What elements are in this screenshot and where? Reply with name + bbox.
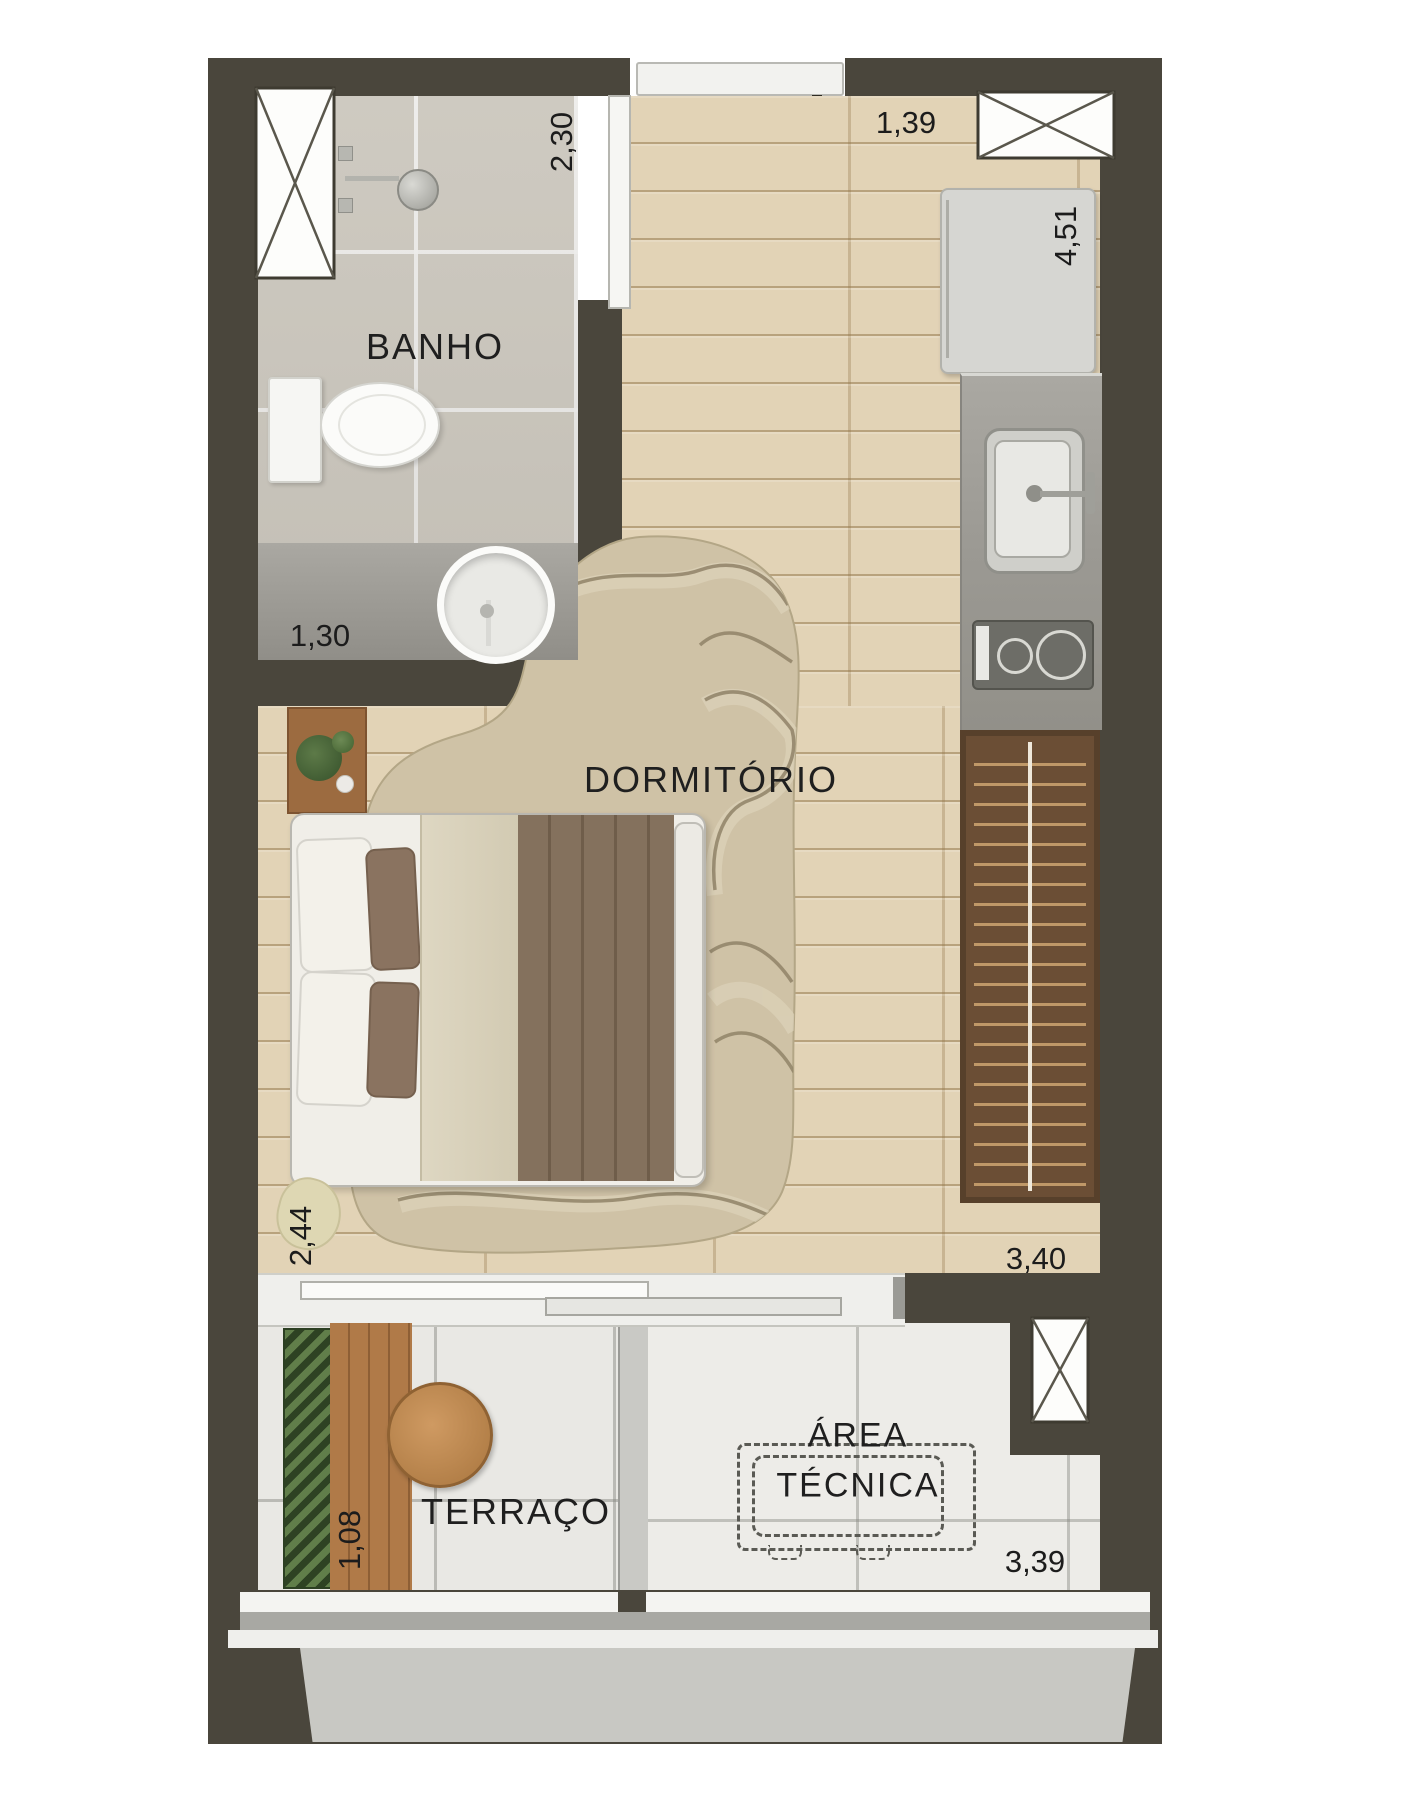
dim-banho-depth: 1,30 (290, 618, 350, 654)
dim-banho-width: 2,30 (544, 112, 580, 172)
dim-entry-width: 1,39 (876, 105, 936, 141)
dim-area-tecnica-width: 3,39 (1005, 1544, 1065, 1580)
room-label-dormitorio: DORMITÓRIO (584, 759, 838, 801)
dim-right-wall: 4,51 (1048, 206, 1084, 266)
shaft-bottom-right-icon (1032, 1318, 1088, 1422)
room-label-terraco: TERRAÇO (421, 1491, 611, 1533)
dim-dormitorio-length: 3,40 (1006, 1241, 1066, 1277)
room-label-banho: BANHO (366, 326, 504, 368)
room-label-area-tecnica-1: ÁREA (808, 1417, 909, 1456)
shaft-top-left-icon (256, 88, 334, 278)
dim-terraco-depth: 1,08 (332, 1510, 368, 1570)
shaft-top-right-icon (978, 92, 1114, 158)
floor-plan: BANHO DORMITÓRIO TERRAÇO ÁREA TÉCNICA 2,… (0, 0, 1414, 1800)
shaft-layer (0, 0, 1414, 1800)
dim-dormitorio-width: 2,44 (283, 1206, 319, 1266)
room-label-area-tecnica-2: TÉCNICA (776, 1467, 939, 1506)
